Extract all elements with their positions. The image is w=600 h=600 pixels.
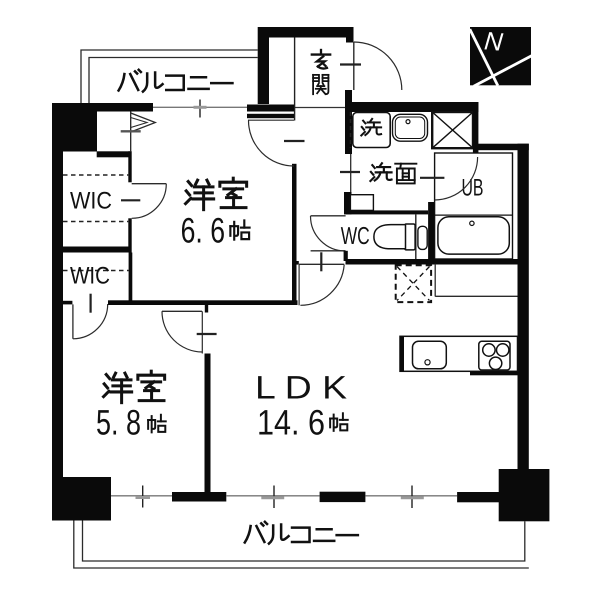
svg-text:14. 6: 14. 6 — [257, 403, 325, 443]
svg-text:WC: WC — [341, 223, 370, 250]
svg-text:6. 6: 6. 6 — [181, 211, 225, 251]
svg-text:N: N — [483, 27, 504, 57]
svg-text:WIC: WIC — [70, 263, 110, 290]
svg-text:5. 8: 5. 8 — [96, 403, 141, 443]
svg-text:L D K: L D K — [255, 370, 347, 406]
svg-text:WIC: WIC — [70, 188, 112, 215]
